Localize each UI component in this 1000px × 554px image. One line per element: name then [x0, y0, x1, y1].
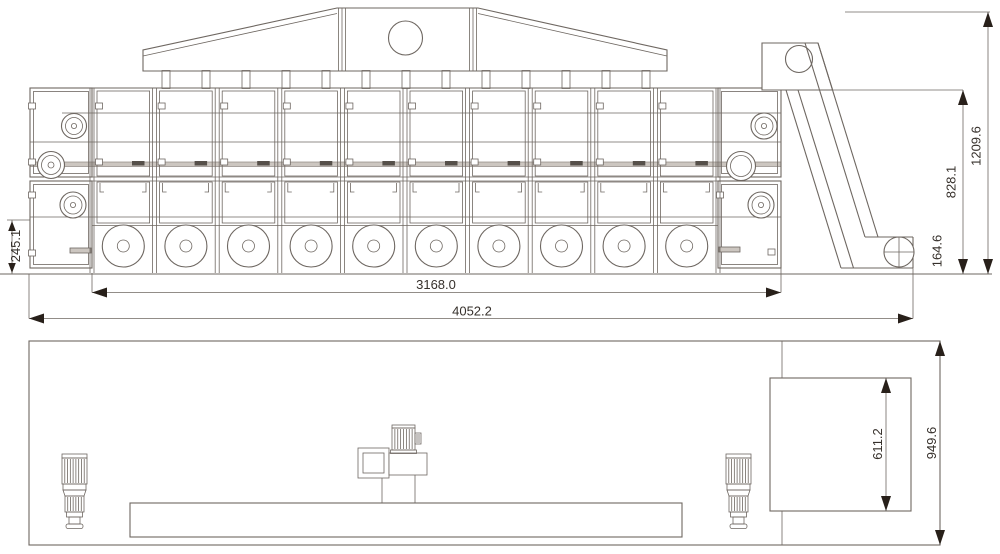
fan-circle: [478, 225, 520, 267]
door-handle: [695, 161, 708, 166]
fan-circle: [165, 225, 207, 267]
hood-duct: [202, 71, 210, 89]
door-handle: [633, 161, 646, 166]
hood-duct: [322, 71, 330, 89]
dimensions: 3168.0 4052.2 245.1 828.1 1209.6 164.6 6…: [7, 12, 993, 545]
door-handle: [570, 161, 583, 166]
technical-drawing: 3168.0 4052.2 245.1 828.1 1209.6 164.6 6…: [0, 0, 1000, 554]
door-clip: [283, 159, 290, 165]
door-clip: [158, 103, 165, 109]
hinge-mark: [142, 183, 146, 192]
door-clip: [409, 103, 416, 109]
dim-label-overall-height: 1209.6: [969, 126, 984, 166]
hinge-mark: [538, 183, 542, 192]
elevator-frame-line: [798, 90, 854, 268]
fan-circle: [415, 225, 457, 267]
door-clip: [346, 103, 353, 109]
door-clip: [534, 159, 541, 165]
cap-clip: [768, 249, 775, 255]
door-clip: [409, 159, 416, 165]
hood-ducts: [162, 71, 650, 89]
dim-arrow: [766, 288, 781, 298]
dim-label-discharge-height: 164.6: [930, 235, 945, 268]
door-clip: [158, 159, 165, 165]
dim-label-overall-length: 4052.2: [452, 304, 492, 319]
plan-view: [29, 341, 940, 545]
door-clip: [283, 103, 290, 109]
door-clip: [471, 103, 478, 109]
elevator-footprint: [770, 378, 911, 511]
cap-clip: [29, 250, 36, 256]
side-view: [0, 8, 992, 274]
discharge-elevator: [762, 43, 914, 268]
motor-foot: [66, 524, 83, 529]
door-handle: [257, 161, 270, 166]
drive-knob: [415, 433, 421, 444]
hinge-mark: [392, 183, 396, 192]
dim-arrow: [881, 496, 891, 511]
door-clip: [596, 159, 603, 165]
door-handle: [132, 161, 145, 166]
gear-motor: [726, 454, 751, 529]
dim-arrow: [958, 90, 968, 105]
dim-arrow: [29, 314, 44, 324]
hood-duct: [602, 71, 610, 89]
door-clip: [596, 103, 603, 109]
drawing-page: 3168.0 4052.2 245.1 828.1 1209.6 164.6 6…: [0, 0, 1000, 554]
dim-label-body-height: 828.1: [944, 166, 959, 199]
hinge-mark: [663, 183, 667, 192]
door-handle: [445, 161, 458, 166]
door-handle: [320, 161, 333, 166]
gear-motor: [62, 454, 87, 529]
hinge-mark: [413, 183, 417, 192]
hinge-mark: [288, 183, 292, 192]
cap-bar: [70, 248, 91, 253]
elevator-frame-line: [818, 43, 878, 237]
drive-gearbox: [389, 453, 427, 475]
modules: [90, 88, 720, 273]
motor-cap: [62, 454, 87, 458]
dim-arrow: [983, 12, 993, 27]
hinge-mark: [100, 183, 104, 192]
door-clip: [346, 159, 353, 165]
door-clip: [221, 159, 228, 165]
dim-arrow: [898, 314, 913, 324]
door-clip: [221, 103, 228, 109]
fan-circle: [603, 225, 645, 267]
drive-motors: [62, 425, 751, 529]
hinge-mark: [225, 183, 229, 192]
fan-circle: [353, 225, 395, 267]
hood-duct: [562, 71, 570, 89]
left-end-cap: [29, 88, 93, 268]
cap-clip: [29, 192, 36, 198]
hood-outline: [143, 8, 667, 71]
hood-duct: [442, 71, 450, 89]
hinge-mark: [601, 183, 605, 192]
hinge-mark: [267, 183, 271, 192]
plan-outline: [29, 341, 940, 545]
elevator-frame-line: [786, 90, 841, 268]
elevator-head-pulley: [786, 46, 813, 73]
motor-body: [726, 458, 751, 484]
fan-circle: [541, 225, 583, 267]
dim-label-elevator-length: 611.2: [870, 428, 885, 460]
dim-arrow: [881, 378, 891, 393]
conveyor-frame: [130, 503, 682, 537]
motor-neck: [69, 517, 80, 524]
hinge-mark: [330, 183, 334, 192]
hinge-mark: [205, 183, 209, 192]
motor-taper: [727, 490, 750, 496]
dim-label-plan-width: 949.6: [924, 427, 939, 460]
dim-arrow: [983, 259, 993, 274]
dim-arrow: [935, 341, 945, 356]
door-clip: [659, 103, 666, 109]
right-end-cap: [717, 88, 782, 268]
motor-band: [731, 512, 747, 517]
cap-panel: [30, 181, 92, 268]
fan-circle: [290, 225, 332, 267]
door-clip: [534, 103, 541, 109]
fan-circle: [666, 225, 708, 267]
hood-duct: [282, 71, 290, 89]
cap-clip: [29, 103, 36, 109]
hood-duct: [522, 71, 530, 89]
dim-arrow: [958, 259, 968, 274]
hood-duct: [402, 71, 410, 89]
central-drive-assembly: [358, 425, 427, 503]
door-handle: [508, 161, 520, 166]
door-handle: [195, 161, 208, 166]
motor-band: [67, 512, 83, 517]
hinge-mark: [518, 183, 522, 192]
hood-slope-line: [143, 14, 337, 57]
hinge-mark: [705, 183, 709, 192]
door-clip: [96, 103, 103, 109]
hinge-mark: [580, 183, 584, 192]
hood-duct: [642, 71, 650, 89]
fan-circle: [102, 225, 144, 267]
dim-arrow: [8, 221, 16, 231]
fan-circle: [228, 225, 270, 267]
door-clip: [659, 159, 666, 165]
hood-port-circle: [389, 21, 423, 55]
door-handle: [382, 161, 395, 166]
hinge-mark: [643, 183, 647, 192]
motor-taper: [63, 490, 86, 496]
dim-label-inlet-height: 245.1: [8, 230, 23, 263]
hinge-mark: [476, 183, 480, 192]
hood-duct: [242, 71, 250, 89]
hinge-mark: [455, 183, 459, 192]
motor-neck: [733, 517, 744, 524]
motor-band: [727, 484, 750, 490]
hood-slope-line: [478, 14, 667, 57]
hinge-mark: [163, 183, 167, 192]
cap-clip: [29, 159, 36, 165]
door-clip: [96, 159, 103, 165]
motor-cap: [726, 454, 751, 458]
hood-duct: [482, 71, 490, 89]
hinge-mark: [350, 183, 354, 192]
hood-duct: [162, 71, 170, 89]
motor-foot: [730, 524, 747, 529]
exhaust-hood: [143, 8, 667, 71]
door-clip: [471, 159, 478, 165]
dim-arrow: [935, 530, 945, 545]
dim-label-chamber-length: 3168.0: [416, 277, 456, 292]
dim-arrow: [92, 288, 107, 298]
dim-arrow: [8, 263, 16, 273]
hood-duct: [362, 71, 370, 89]
motor-body: [62, 458, 87, 484]
drive-motor-cap: [392, 425, 415, 428]
cap-bar: [719, 247, 740, 252]
motor-band: [63, 484, 86, 490]
